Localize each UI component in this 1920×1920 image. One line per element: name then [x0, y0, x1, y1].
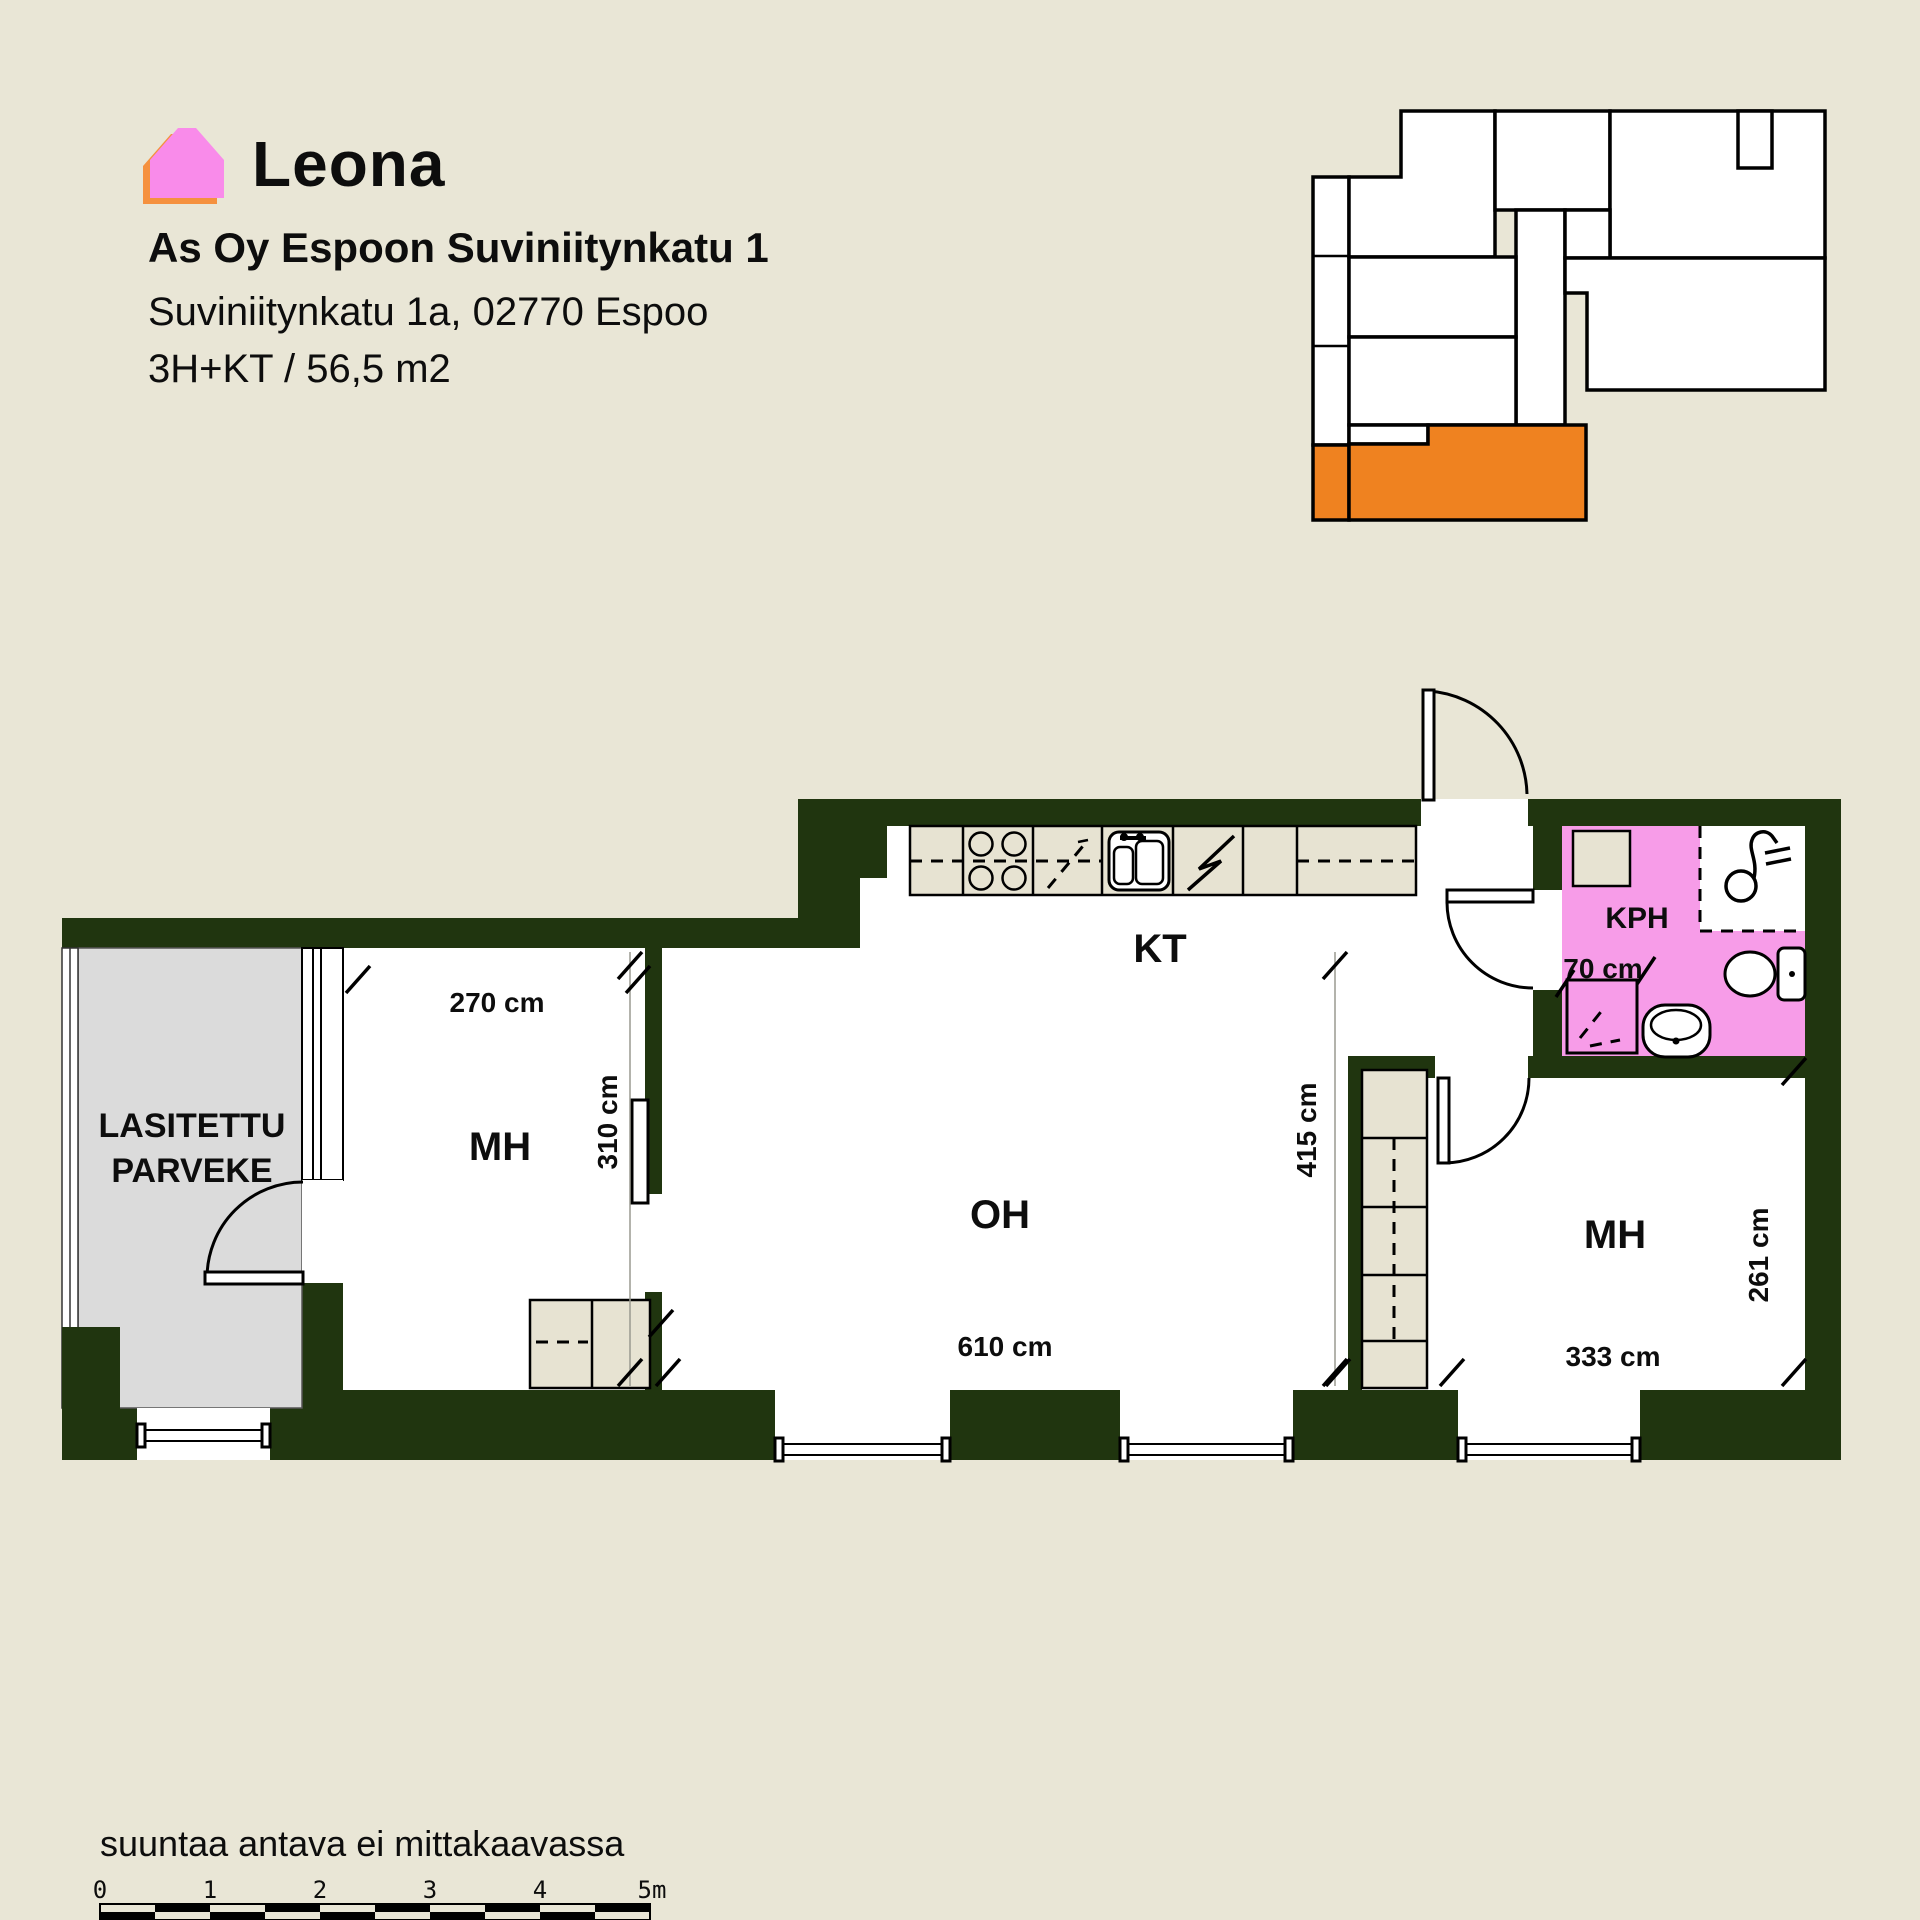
bathroom-label: KPH [1605, 902, 1668, 935]
dim-310: 310 cm [592, 1075, 623, 1170]
bathroom-door-leaf [1447, 890, 1533, 902]
bathroom-reserved-slot [1567, 980, 1637, 1053]
balcony-label-line2: PARVEKE [111, 1152, 272, 1190]
brand-name: Leona [252, 128, 445, 200]
bedroom1-label: MH [469, 1125, 531, 1169]
scale-bar: 0 1 2 3 4 5m [93, 1876, 667, 1920]
entrance-door-swing-arc [1429, 691, 1527, 794]
washer-slot [1573, 831, 1630, 886]
page-title: As Oy Espoon Suviniitynkatu 1 [148, 224, 769, 271]
living-room-window-1 [775, 1385, 950, 1461]
header-block: As Oy Espoon Suviniitynkatu 1 Suviniityn… [148, 224, 769, 391]
kitchen-counter [910, 826, 1416, 895]
bedroom1-sliding-door-leaf [632, 1100, 648, 1203]
entrance-door-leaf [1423, 690, 1434, 800]
footer: suuntaa antava ei mittakaavassa 0 1 2 3 … [93, 1823, 667, 1920]
bedroom1-window [302, 948, 343, 1180]
dim-70: 70 cm [1563, 953, 1642, 984]
sink-icon [1643, 1005, 1710, 1057]
scale-label-0: 0 [93, 1876, 107, 1904]
kitchen-sink-icon [1109, 832, 1169, 890]
disclaimer-text: suuntaa antava ei mittakaavassa [100, 1823, 625, 1864]
scale-label-3: 3 [423, 1876, 437, 1904]
balcony-door-leaf [205, 1272, 303, 1284]
balcony-label-line1: LASITETTU [99, 1107, 286, 1145]
bedroom2-label: MH [1584, 1213, 1646, 1257]
dim-415: 415 cm [1291, 1083, 1322, 1178]
dim-261: 261 cm [1743, 1208, 1774, 1303]
address-line: Suviniitynkatu 1a, 02770 Espoo [148, 290, 708, 334]
floorplan-sheet: Leona As Oy Espoon Suviniitynkatu 1 Suvi… [0, 0, 1920, 1920]
balcony-corner-pillar [62, 1327, 120, 1460]
dim-270: 270 cm [450, 987, 545, 1018]
dim-333: 333 cm [1566, 1341, 1661, 1372]
bedroom2-door-leaf [1438, 1078, 1449, 1163]
house-logo-icon [143, 128, 224, 204]
floorplan-canvas: Leona As Oy Espoon Suviniitynkatu 1 Suvi… [0, 0, 1920, 1920]
living-room-window-2 [1120, 1385, 1293, 1461]
balcony-window [137, 1408, 270, 1460]
bedroom2-wardrobes [1362, 1070, 1427, 1388]
living-room-label: OH [970, 1193, 1030, 1237]
scale-label-1: 1 [203, 1876, 217, 1904]
scale-label-2: 2 [313, 1876, 327, 1904]
floor-plan: KPH 70 cm [62, 690, 1841, 1461]
location-minimap [1313, 111, 1825, 520]
apartment-spec: 3H+KT / 56,5 m2 [148, 347, 451, 391]
bedroom2-window [1458, 1385, 1640, 1461]
brand-logo: Leona [143, 128, 445, 204]
balcony [62, 948, 302, 1460]
scale-bar-cells [100, 1904, 650, 1920]
toilet-icon [1725, 948, 1805, 1000]
scale-label-5: 5m [638, 1876, 667, 1904]
shower-area [1700, 826, 1805, 931]
kitchen-label: KT [1133, 927, 1186, 971]
scale-label-4: 4 [533, 1876, 547, 1904]
dim-610: 610 cm [958, 1331, 1053, 1362]
bathroom: KPH 70 cm [1556, 826, 1805, 1057]
